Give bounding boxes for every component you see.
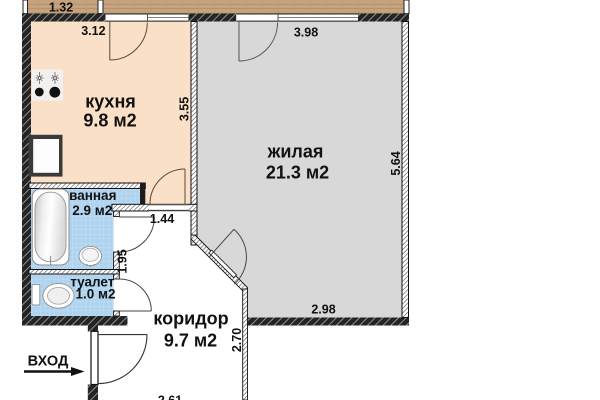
svg-text:1.0 м2: 1.0 м2 [75, 286, 115, 301]
svg-text:1.95: 1.95 [115, 249, 129, 273]
svg-text:ванная: ванная [69, 188, 116, 203]
svg-text:коридор: коридор [153, 309, 228, 329]
svg-text:9.8 м2: 9.8 м2 [83, 111, 136, 131]
svg-text:жилая: жилая [267, 142, 324, 162]
svg-text:1.32: 1.32 [49, 1, 73, 15]
svg-text:2.70: 2.70 [230, 328, 244, 352]
svg-text:2.9 м2: 2.9 м2 [72, 203, 112, 218]
svg-text:3.12: 3.12 [81, 24, 105, 38]
svg-text:3.55: 3.55 [178, 97, 192, 121]
svg-text:кухня: кухня [85, 92, 136, 112]
svg-text:21.3 м2: 21.3 м2 [266, 163, 329, 183]
svg-text:9.7 м2: 9.7 м2 [164, 331, 217, 351]
svg-text:5.64: 5.64 [389, 151, 403, 175]
svg-text:3.98: 3.98 [294, 26, 318, 40]
svg-text:2.98: 2.98 [311, 303, 335, 317]
svg-text:ВХОД: ВХОД [28, 354, 69, 370]
svg-text:2.61: 2.61 [158, 394, 182, 400]
svg-text:1.44: 1.44 [150, 212, 174, 226]
